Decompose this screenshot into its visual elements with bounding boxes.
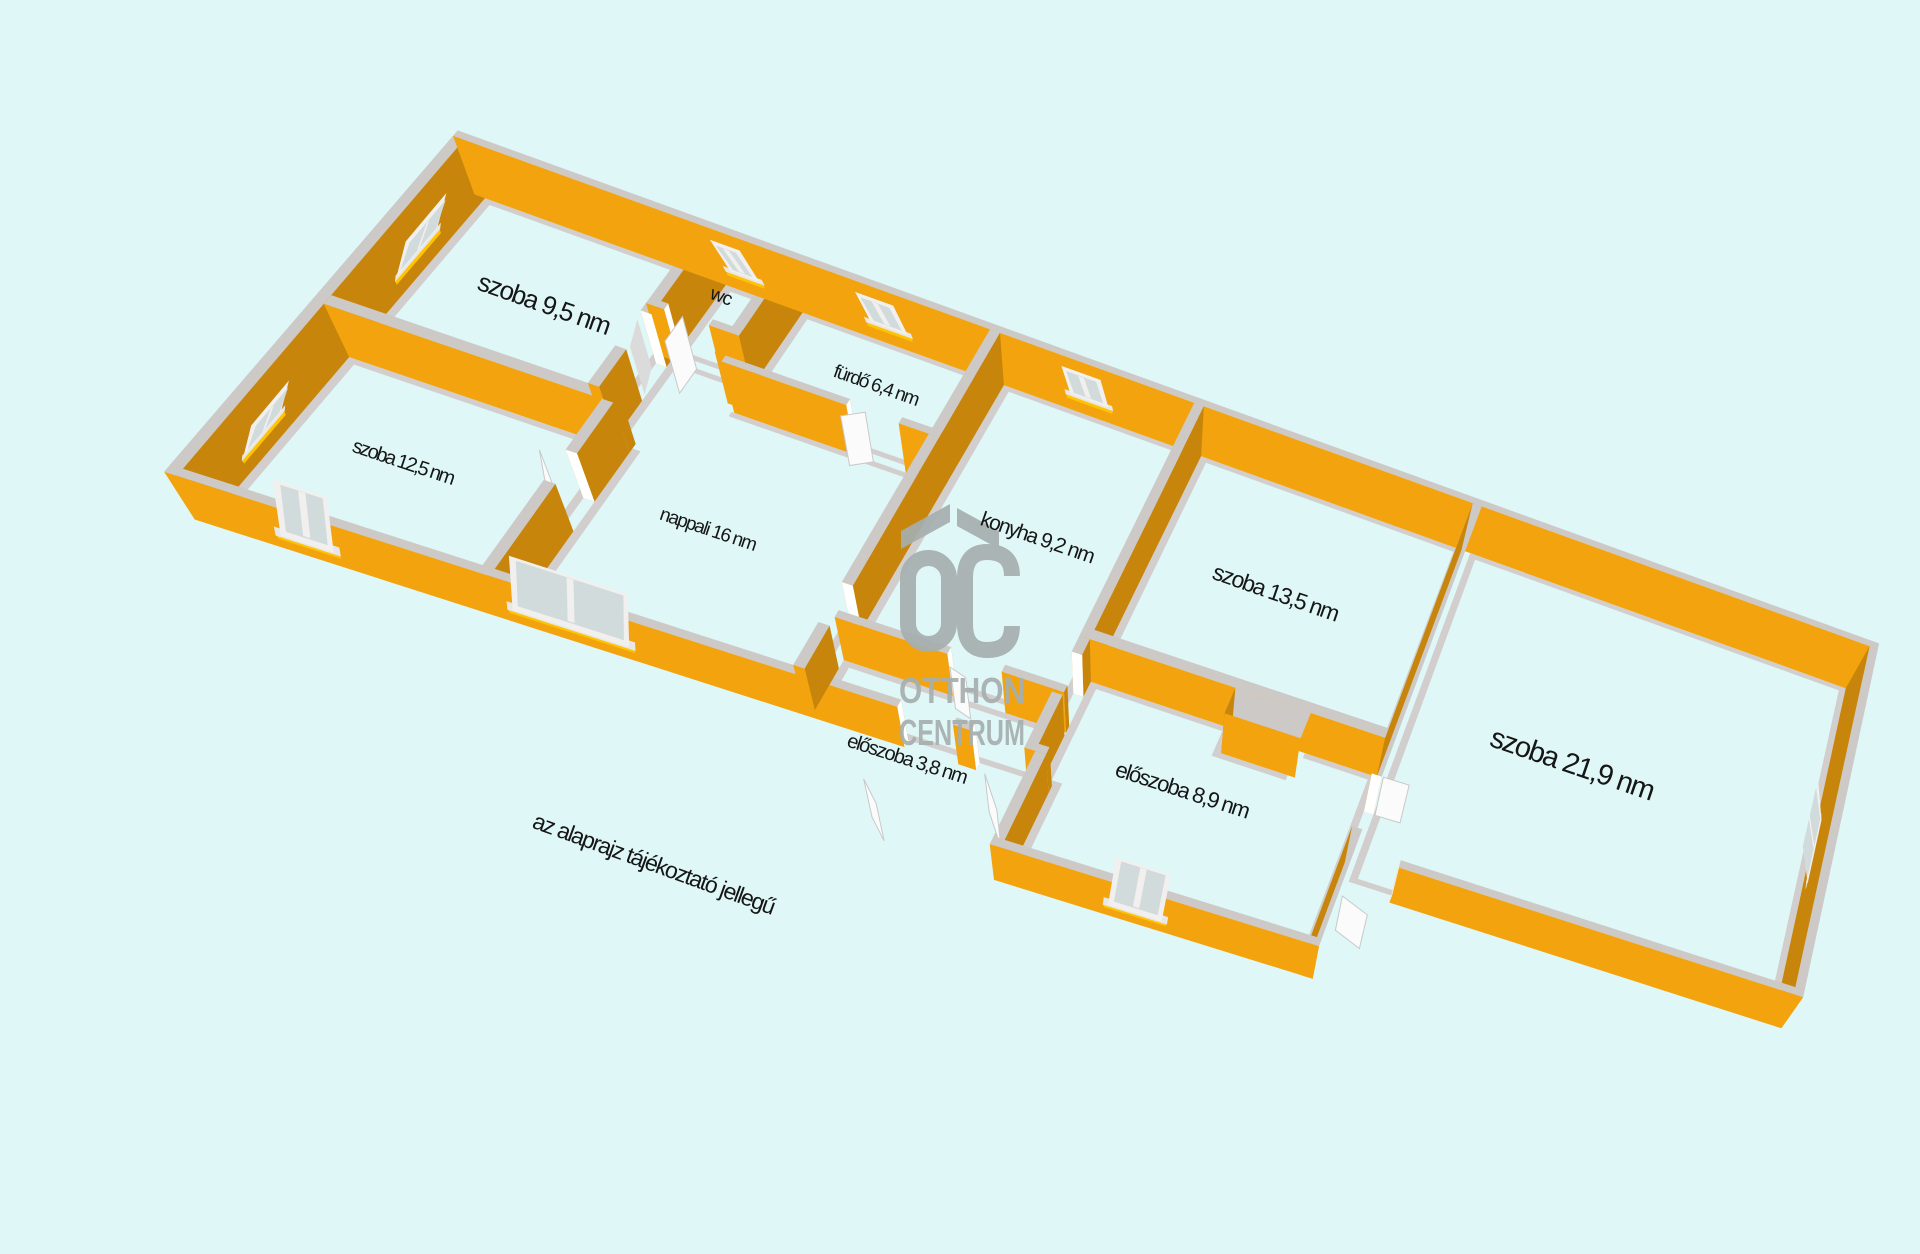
svg-text:CENTRUM: CENTRUM xyxy=(899,712,1025,753)
svg-text:OTTHON: OTTHON xyxy=(899,670,1025,711)
